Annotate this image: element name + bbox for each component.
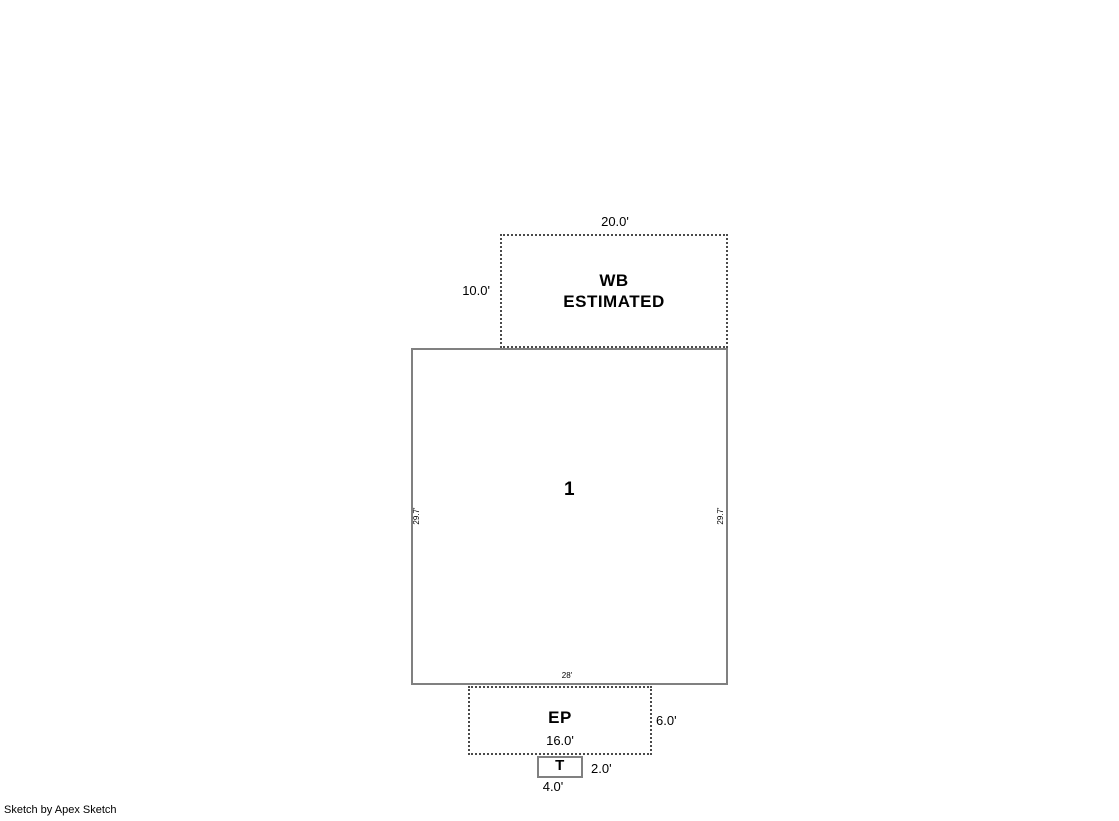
main-dimension-bottom: 28' (537, 671, 597, 680)
floorplan-sketch: WB ESTIMATED 20.0' 10.0' 1 29.7' 29.7' 2… (0, 0, 1119, 821)
sketch-credit: Sketch by Apex Sketch (4, 804, 117, 816)
wb-area-label: WB ESTIMATED (500, 270, 728, 312)
t-dimension-bottom: 4.0' (523, 779, 583, 794)
ep-area-label: EP (468, 707, 652, 728)
main-dimension-right: 29.7' (716, 496, 728, 536)
ep-dimension-right: 6.0' (656, 713, 706, 728)
main-dimension-left: 29.7' (412, 496, 424, 536)
t-area-label: T (537, 758, 583, 774)
main-area-outline (411, 348, 728, 685)
wb-area-qualifier: ESTIMATED (500, 291, 728, 312)
t-dimension-right: 2.0' (591, 761, 641, 776)
main-area-label: 1 (411, 479, 728, 501)
wb-dimension-left: 10.0' (430, 283, 490, 298)
wb-dimension-top: 20.0' (565, 214, 665, 229)
ep-dimension-width: 16.0' (468, 733, 652, 748)
wb-area-name: WB (500, 270, 728, 291)
